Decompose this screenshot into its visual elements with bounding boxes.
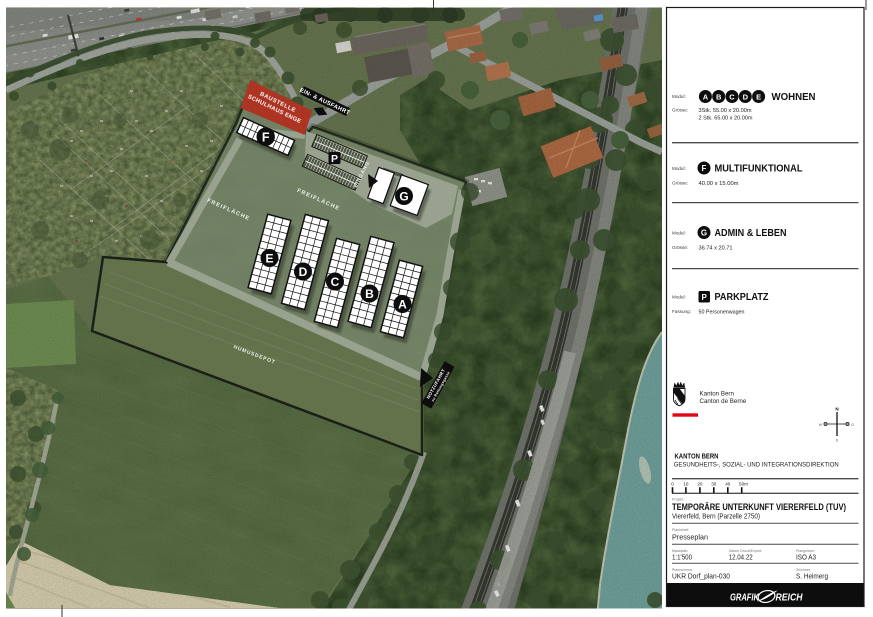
svg-text:3Stk. 55.00 x 20.00m: 3Stk. 55.00 x 20.00m (699, 108, 752, 114)
svg-text:Modul:: Modul: (672, 166, 686, 171)
svg-text:0: 0 (671, 482, 674, 487)
svg-text:Canton de Berne: Canton de Berne (700, 398, 747, 405)
svg-text:P: P (331, 153, 338, 165)
svg-text:F: F (702, 164, 707, 173)
svg-text:Modul:: Modul: (672, 94, 686, 99)
svg-text:UKR Dorf_plan-030: UKR Dorf_plan-030 (672, 572, 730, 581)
svg-text:D: D (299, 265, 308, 279)
svg-text:C: C (729, 92, 735, 101)
svg-text:Kanton Bern: Kanton Bern (700, 391, 735, 398)
svg-text:B: B (365, 287, 374, 301)
svg-text:50 Personenwagen: 50 Personenwagen (699, 310, 745, 316)
svg-text:ISO A3: ISO A3 (796, 553, 816, 562)
svg-text:D: D (743, 92, 749, 101)
svg-text:MULTIFUNKTIONAL: MULTIFUNKTIONAL (715, 164, 803, 175)
svg-text:Projekt:: Projekt: (672, 498, 684, 502)
svg-text:E: E (265, 251, 273, 265)
svg-text:ADMIN & LEBEN: ADMIN & LEBEN (715, 228, 787, 239)
svg-text:Planinhalt:: Planinhalt: (672, 528, 689, 532)
svg-text:KANTON BERN: KANTON BERN (675, 454, 719, 461)
svg-text:40.00 x 15.00m: 40.00 x 15.00m (699, 181, 739, 187)
svg-text:PARKPLATZ: PARKPLATZ (715, 292, 769, 303)
svg-text:50m: 50m (739, 482, 748, 487)
svg-text:GESUNDHEITS-, SOZIAL- UND INTE: GESUNDHEITS-, SOZIAL- UND INTEGRATIONSDI… (674, 462, 839, 469)
svg-text:F: F (262, 130, 270, 144)
svg-text:C: C (331, 275, 340, 289)
svg-text:10: 10 (683, 482, 689, 487)
svg-text:Presseplan: Presseplan (672, 533, 708, 542)
svg-text:TEMPORÄRE UNTERKUNFT VIERERFEL: TEMPORÄRE UNTERKUNFT VIERERFELD (TUV) (672, 502, 846, 513)
svg-text:36.74 x 20.71: 36.74 x 20.71 (699, 246, 733, 252)
svg-text:GRAFIK: GRAFIK (730, 593, 760, 604)
svg-text:W: W (819, 423, 823, 427)
svg-text:WOHNEN: WOHNEN (772, 92, 816, 103)
svg-text:12.04.22: 12.04.22 (729, 553, 753, 562)
svg-text:E: E (756, 92, 761, 101)
svg-text:Grösse:: Grösse: (672, 108, 688, 113)
svg-text:G: G (701, 228, 707, 237)
svg-text:2 Stk. 65.00 x 20.00m: 2 Stk. 65.00 x 20.00m (699, 116, 753, 122)
svg-text:A: A (703, 92, 709, 101)
svg-text:Modul:: Modul: (672, 295, 686, 300)
svg-text:Grösse:: Grösse: (672, 181, 688, 186)
svg-text:REICH: REICH (776, 593, 804, 604)
svg-text:A: A (398, 297, 407, 311)
svg-text:B: B (716, 92, 722, 101)
svg-text:20: 20 (697, 482, 703, 487)
svg-text:40: 40 (725, 482, 731, 487)
svg-text:G: G (399, 189, 408, 203)
svg-text:O: O (851, 423, 854, 427)
svg-text:Fassung:: Fassung: (672, 309, 691, 314)
svg-text:P: P (702, 293, 708, 302)
svg-text:S. Heimerg: S. Heimerg (796, 572, 828, 581)
svg-text:Viererfeld, Bern (Parzelle 275: Viererfeld, Bern (Parzelle 2750) (672, 514, 760, 521)
svg-text:Modul:: Modul: (672, 231, 686, 236)
svg-text:30: 30 (711, 482, 717, 487)
svg-text:Grösse:: Grösse: (672, 245, 688, 250)
svg-text:1:1'500: 1:1'500 (672, 553, 692, 562)
